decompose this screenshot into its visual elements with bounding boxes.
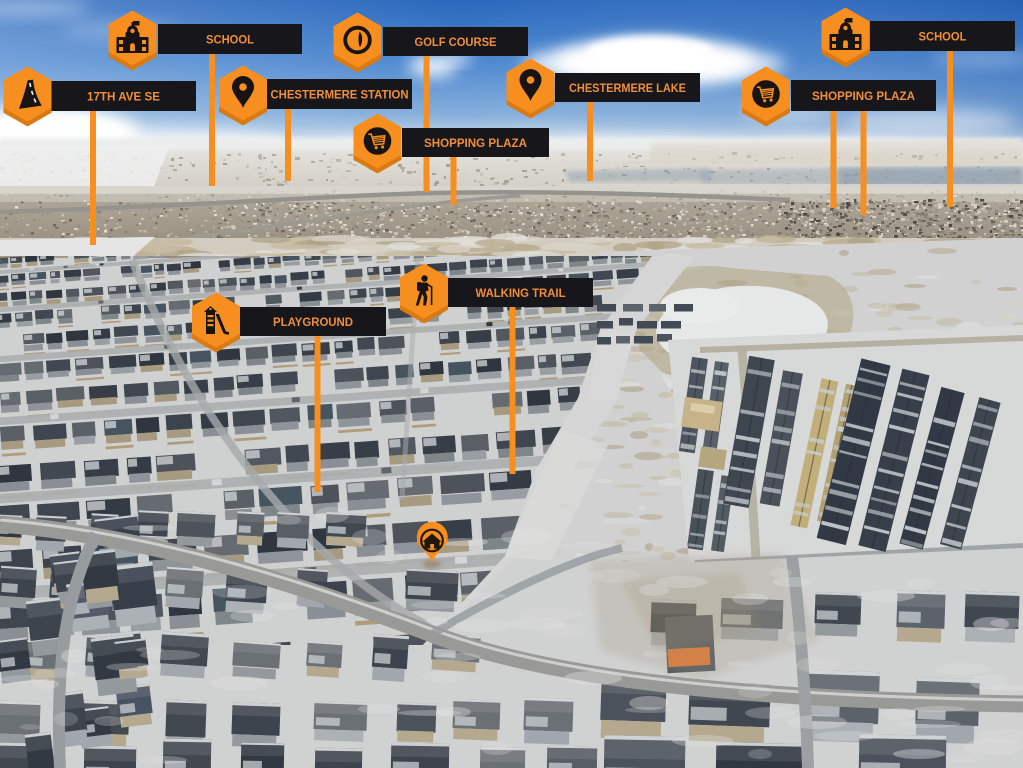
svg-text:WALKING TRAIL: WALKING TRAIL (476, 286, 566, 300)
svg-text:PLAYGROUND: PLAYGROUND (273, 315, 353, 329)
svg-text:SCHOOL: SCHOOL (206, 32, 254, 46)
svg-text:SHOPPING PLAZA: SHOPPING PLAZA (424, 136, 527, 150)
svg-text:SHOPPING PLAZA: SHOPPING PLAZA (812, 89, 915, 103)
svg-text:CHESTERMERE LAKE: CHESTERMERE LAKE (569, 81, 686, 95)
svg-text:17TH AVE SE: 17TH AVE SE (87, 89, 160, 103)
svg-text:SCHOOL: SCHOOL (919, 29, 967, 43)
svg-text:GOLF COURSE: GOLF COURSE (415, 35, 497, 49)
svg-text:CHESTERMERE STATION: CHESTERMERE STATION (271, 87, 409, 101)
